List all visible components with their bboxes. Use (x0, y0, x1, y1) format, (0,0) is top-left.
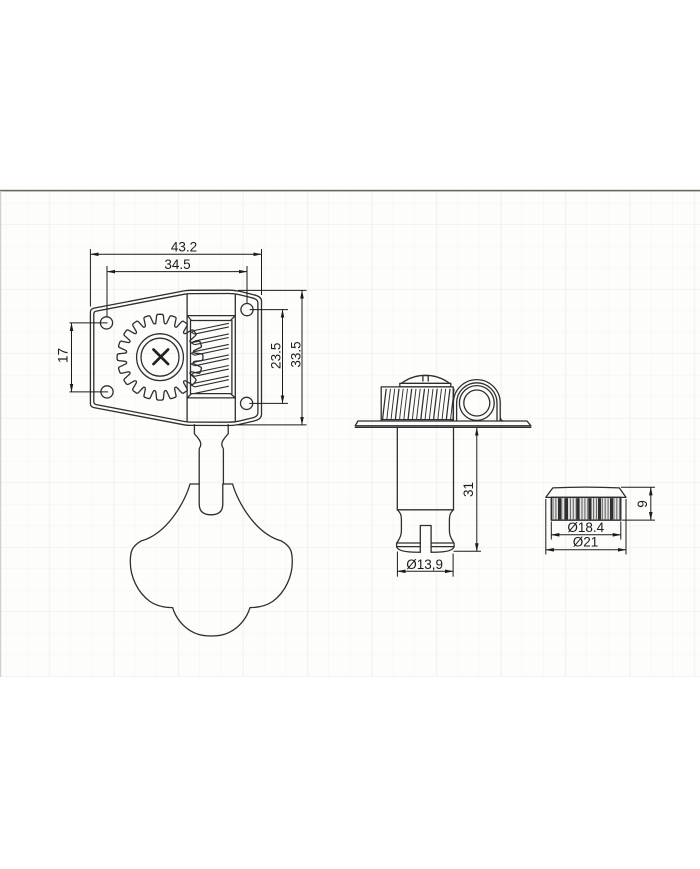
svg-text:23.5: 23.5 (269, 343, 284, 369)
svg-text:31: 31 (461, 482, 476, 497)
svg-text:Ø18.4: Ø18.4 (567, 520, 604, 535)
svg-text:17: 17 (56, 348, 71, 363)
svg-text:34.5: 34.5 (164, 257, 190, 272)
svg-text:9: 9 (635, 500, 650, 508)
svg-text:Ø21: Ø21 (573, 535, 599, 550)
svg-text:33.5: 33.5 (288, 341, 303, 367)
svg-text:Ø13,9: Ø13,9 (406, 557, 443, 572)
svg-text:43.2: 43.2 (171, 240, 197, 255)
